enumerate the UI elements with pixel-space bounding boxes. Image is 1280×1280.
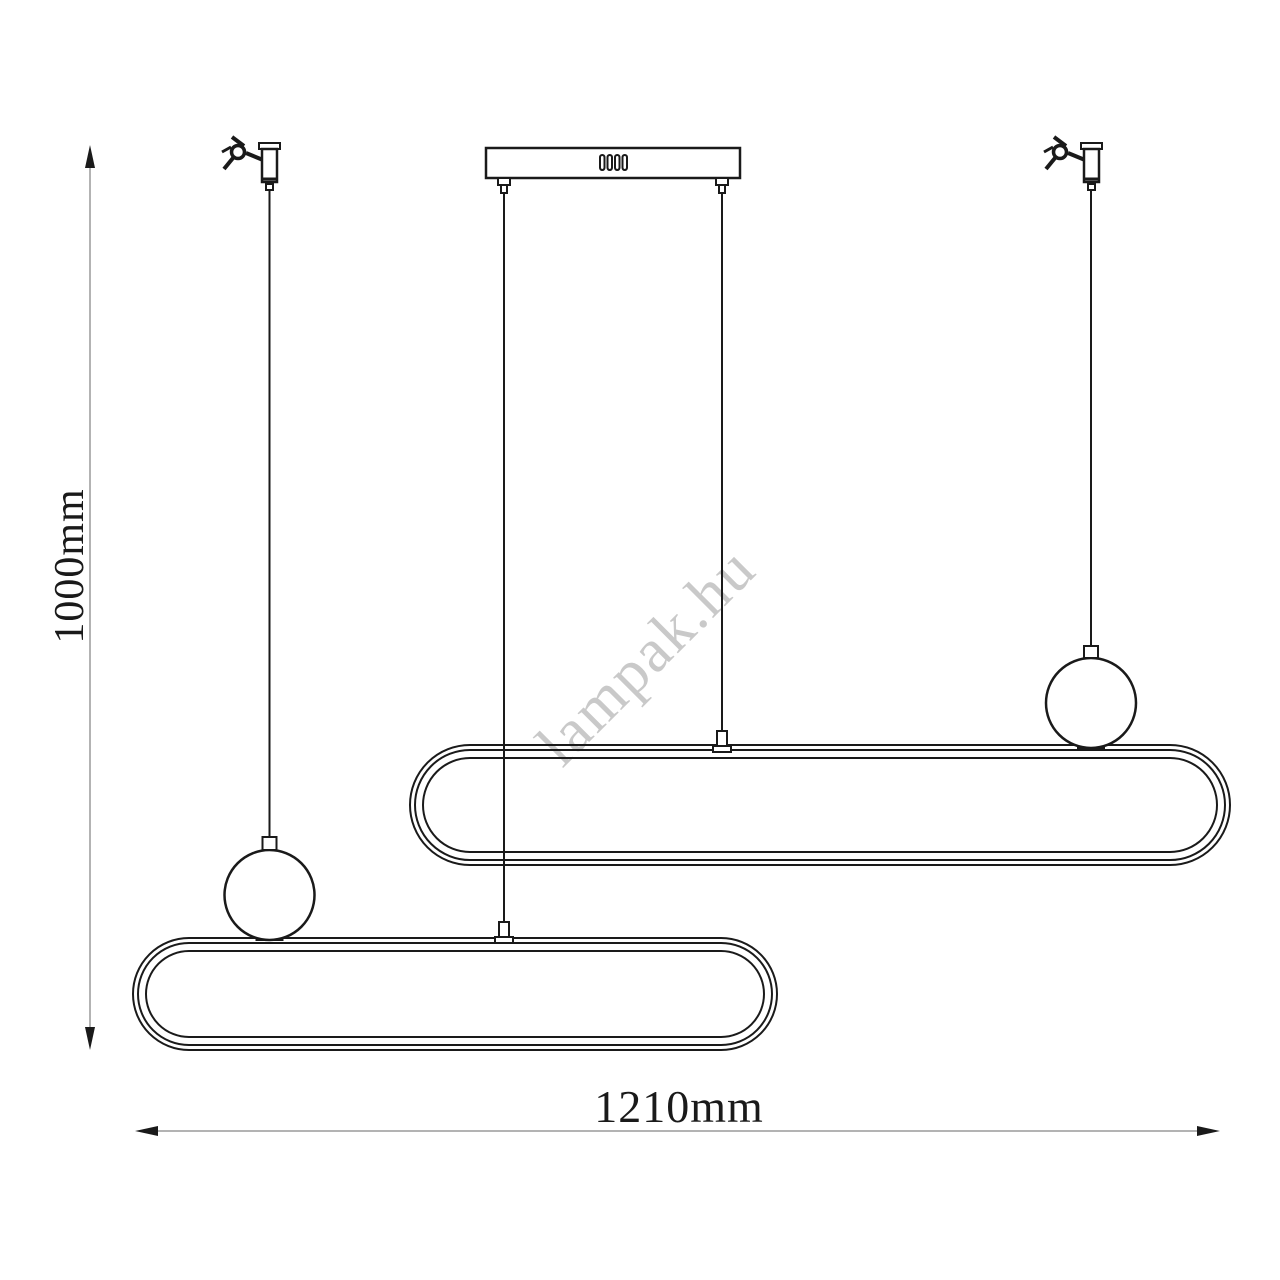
upper-ring-inner <box>423 758 1217 852</box>
suspension-wires <box>270 190 1092 924</box>
upper-ring-middle <box>415 750 1225 860</box>
arrow-left-icon <box>135 1126 158 1136</box>
sphere-left <box>225 850 315 940</box>
gripper-barrel <box>1084 149 1099 182</box>
gripper-tip-icon <box>222 147 231 152</box>
cable-gripper-left <box>222 137 280 190</box>
gripper-nub <box>266 184 273 190</box>
arrow-right-icon <box>1197 1126 1220 1136</box>
upper-ring-mount-grip <box>717 731 727 746</box>
canopy-cord-grip-right <box>716 178 728 185</box>
gripper-tip-icon <box>1044 147 1053 152</box>
lower-ring-inner <box>146 951 764 1037</box>
canopy-cord-grip-left <box>498 178 510 185</box>
gripper-arm <box>246 153 263 160</box>
watermark-text: lampak.hu <box>524 534 769 779</box>
watermark: lampak.hu <box>524 534 769 779</box>
lower-ring-outer <box>133 938 777 1050</box>
lower-ring-middle <box>138 943 772 1045</box>
upper-ring-outer <box>410 745 1230 865</box>
arrow-down-icon <box>85 1027 95 1050</box>
arrow-up-icon <box>85 145 95 168</box>
width-dimension-label: 1210mm <box>594 1081 764 1132</box>
gripper-spur-icon <box>1046 158 1055 169</box>
lower-ring-lamp <box>133 837 777 1050</box>
width-dimension: 1210mm <box>135 1081 1220 1136</box>
lower-ring-mount-grip <box>499 922 509 937</box>
cable-gripper-right <box>1044 137 1102 190</box>
sphere-right-cap <box>1084 646 1098 658</box>
gripper-arm <box>1068 153 1085 160</box>
sphere-right <box>1046 658 1136 748</box>
upper-ring-lamp <box>410 646 1230 865</box>
gripper-barrel <box>262 149 277 182</box>
sphere-left-cap <box>263 837 277 850</box>
gripper-loop-icon <box>232 146 245 159</box>
canopy-cord-grip-right-nub <box>719 185 725 193</box>
canopy-cord-grip-left-nub <box>501 185 507 193</box>
pendant-lamp-diagram: lampak.hu 1000mm 1210mm <box>0 0 1280 1280</box>
gripper-loop-icon <box>1054 146 1067 159</box>
technical-drawing-canvas: lampak.hu 1000mm 1210mm <box>0 0 1280 1280</box>
gripper-spur-icon <box>224 158 233 169</box>
ceiling-canopy <box>486 148 740 193</box>
gripper-nub <box>1088 184 1095 190</box>
height-dimension: 1000mm <box>47 145 95 1050</box>
height-dimension-label: 1000mm <box>47 488 93 643</box>
